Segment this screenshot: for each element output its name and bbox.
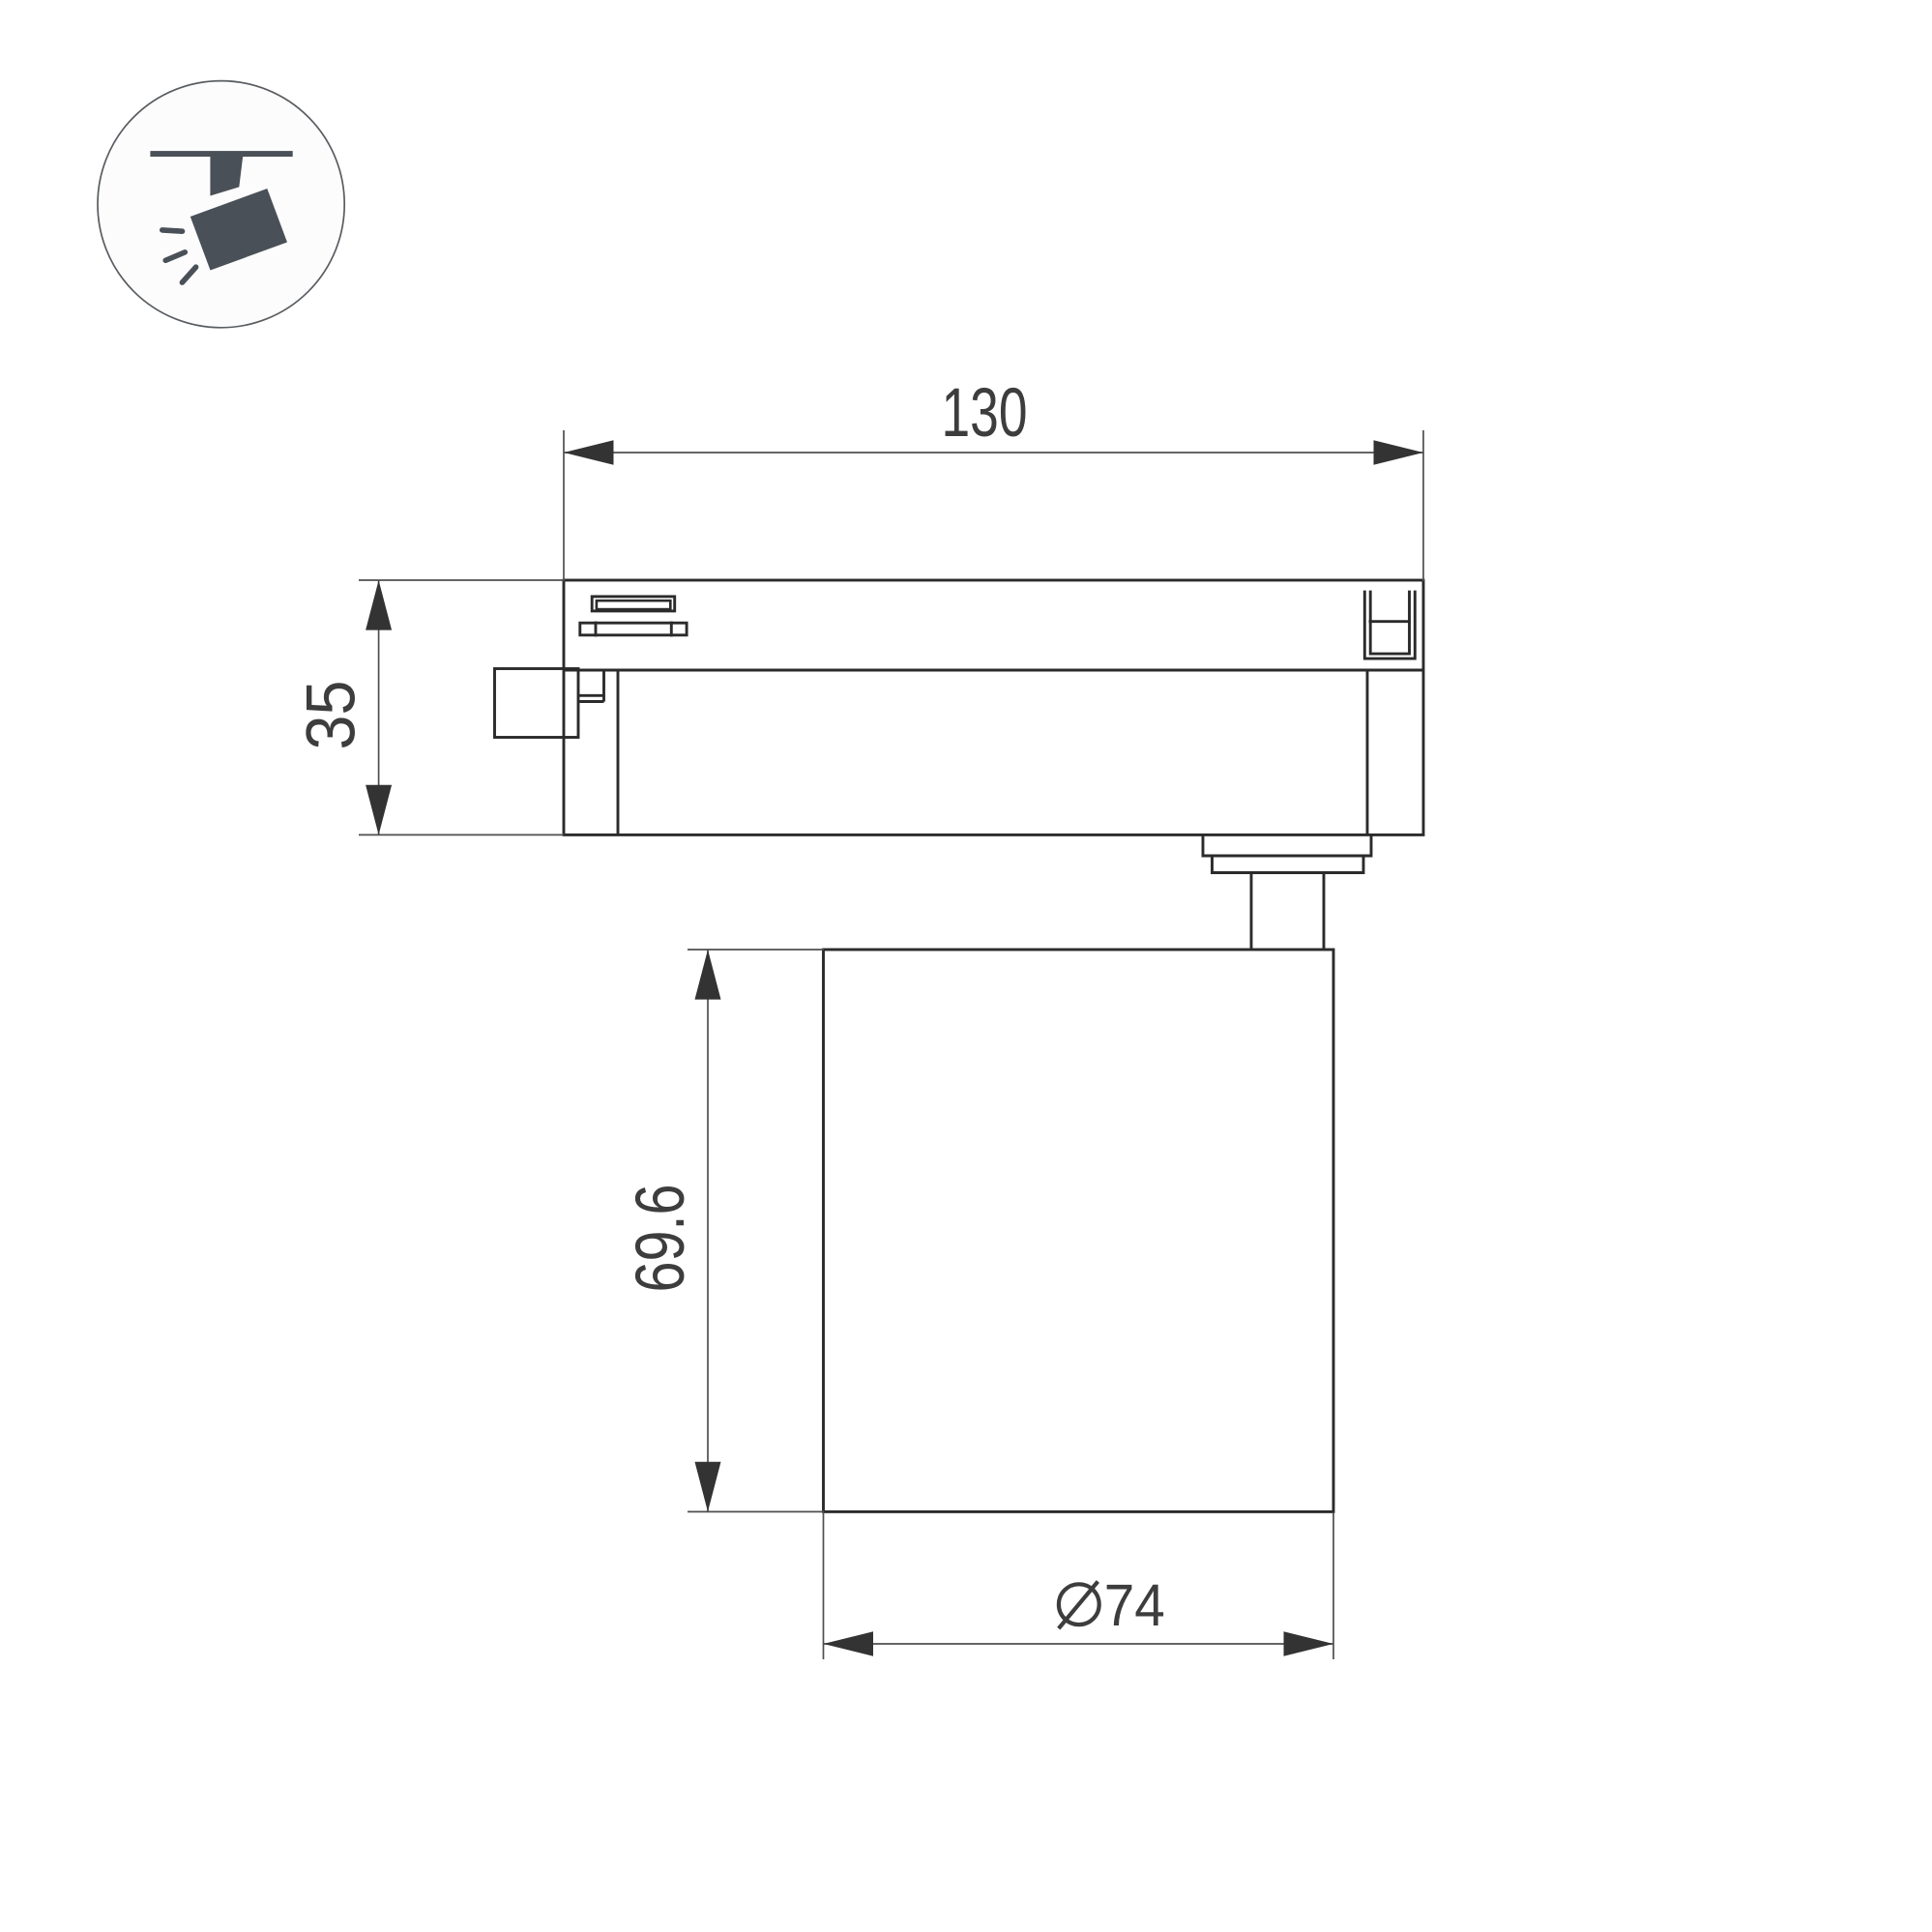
svg-text:74: 74 — [1104, 1572, 1165, 1638]
svg-text:35: 35 — [294, 681, 370, 750]
svg-text:130: 130 — [942, 375, 1028, 452]
svg-text:69.6: 69.6 — [623, 1185, 699, 1293]
